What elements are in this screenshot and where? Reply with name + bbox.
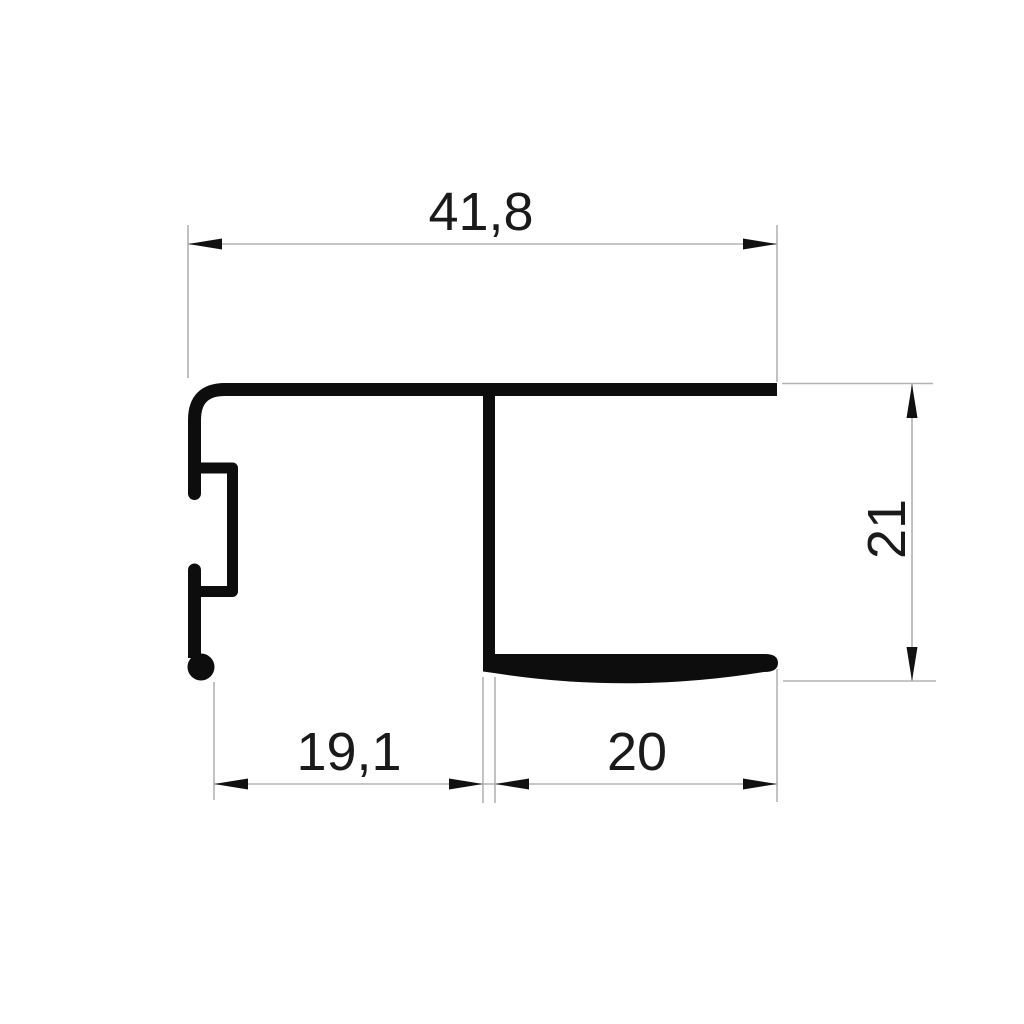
dimension-lines	[188, 244, 912, 784]
dimension-label-right-height: 21	[857, 499, 917, 559]
extension-lines	[188, 225, 936, 803]
arrowhead-right-height-top	[907, 384, 918, 418]
arrowhead-right-width-right	[743, 779, 777, 790]
profile-outline	[188, 390, 779, 684]
dimension-label-total-width: 41,8	[428, 182, 533, 242]
arrowhead-total-width-right	[743, 239, 777, 250]
profile-bottom-flange	[483, 654, 778, 683]
arrowhead-right-height-bottom	[907, 647, 918, 681]
arrowhead-total-width-left	[188, 239, 222, 250]
profile-drawing-canvas: 41,8 21 19,1 20	[0, 0, 1024, 1024]
arrowhead-left-width-right	[449, 779, 483, 790]
arrowheads	[188, 239, 918, 790]
technical-drawing-page: 41,8 21 19,1 20	[0, 0, 1024, 1024]
profile-bottom-left-bead	[188, 654, 215, 681]
dimension-label-right-width: 20	[607, 722, 667, 782]
arrowhead-left-width-left	[214, 779, 248, 790]
dimension-label-left-width: 19,1	[296, 722, 401, 782]
dimension-labels: 41,8 21 19,1 20	[296, 182, 917, 782]
arrowhead-right-width-left	[495, 779, 529, 790]
profile-upper-wall-rounded-tip	[188, 487, 201, 500]
